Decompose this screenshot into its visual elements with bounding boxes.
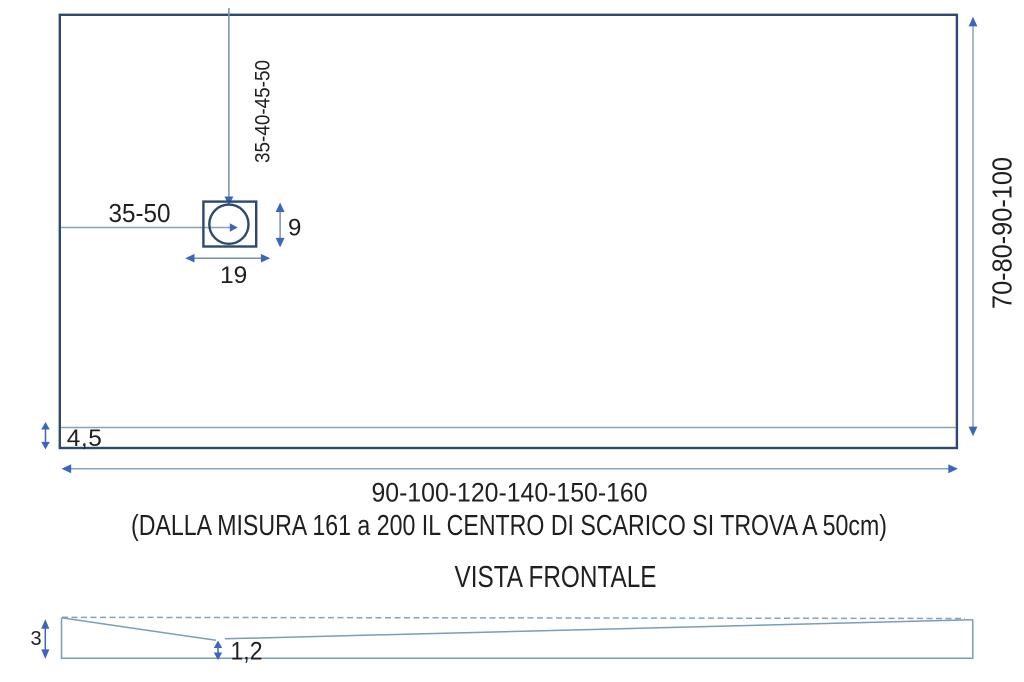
svg-text:3: 3 [31,628,42,650]
svg-text:35-40-45-50: 35-40-45-50 [252,60,275,163]
svg-text:19: 19 [220,262,247,289]
svg-text:VISTA FRONTALE: VISTA FRONTALE [455,559,657,594]
svg-text:(DALLA MISURA 161 a 200 IL CEN: (DALLA MISURA 161 a 200 IL CENTRO DI SCA… [131,510,887,542]
svg-text:4,5: 4,5 [67,425,102,452]
svg-text:35-50: 35-50 [109,200,171,228]
svg-text:70-80-90-100: 70-80-90-100 [987,157,1018,309]
svg-text:9: 9 [288,215,301,242]
svg-text:90-100-120-140-150-160: 90-100-120-140-150-160 [372,478,648,508]
svg-text:1,2: 1,2 [231,637,263,665]
